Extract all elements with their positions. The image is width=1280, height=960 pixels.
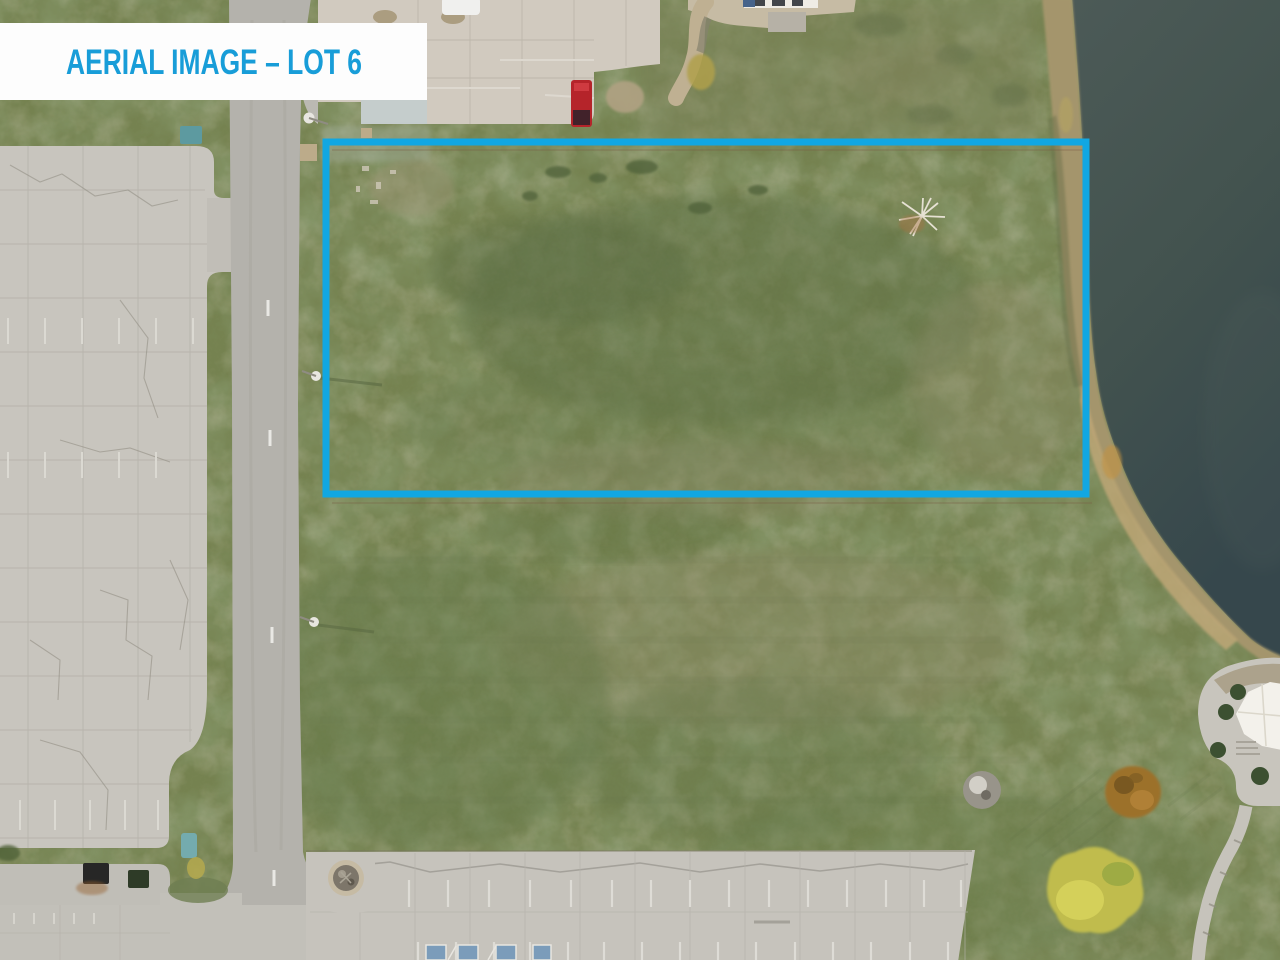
svg-text:AERIAL IMAGE – LOT 6: AERIAL IMAGE – LOT 6 bbox=[66, 43, 362, 82]
